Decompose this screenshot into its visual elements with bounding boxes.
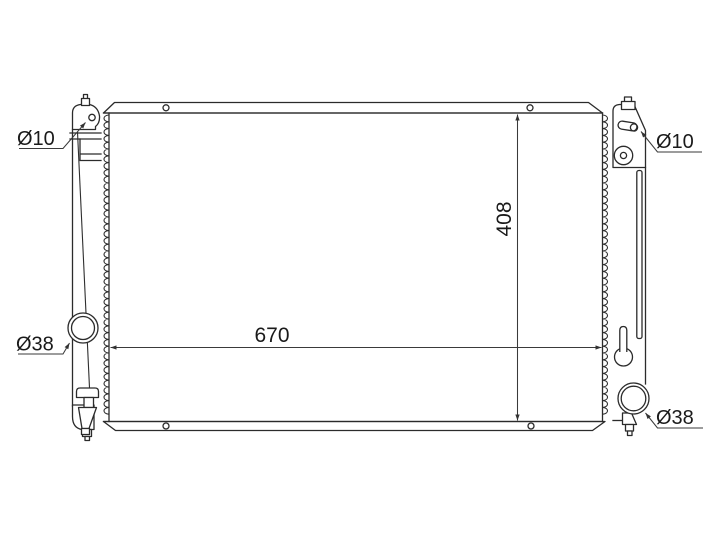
dim-height-value: 408 (493, 201, 516, 236)
right-mount-grommet (614, 146, 632, 164)
right-tank (613, 97, 649, 436)
right-side-channel (637, 171, 642, 339)
overflow-stem (620, 327, 627, 353)
left-tank-step (80, 139, 101, 161)
dimension-height: 408 (493, 115, 518, 421)
right-fin-edge (603, 115, 608, 414)
grommet-outer (614, 146, 632, 164)
dia38-left-text: Ø38 (16, 334, 54, 356)
left-tank (68, 95, 101, 441)
right-foot-tab (626, 425, 634, 432)
bottom-plate (104, 422, 606, 431)
dia38-right-text: Ø38 (656, 407, 694, 429)
right-foot (623, 413, 637, 425)
left-tank-taper-line (78, 132, 90, 388)
left-bottom-notch (85, 437, 90, 441)
left-top-tab (82, 99, 90, 106)
inlet-port (68, 313, 98, 343)
overflow-pipe (615, 327, 633, 367)
left-fin-edge (104, 115, 109, 414)
drain-plug-foot (82, 429, 90, 435)
right-foot-notch (628, 431, 633, 436)
label-dia38-right: Ø38 (646, 407, 704, 429)
drawing-canvas: 670 408 Ø10 Ø38 Ø10 Ø38 (0, 0, 720, 540)
dia10-left-text: Ø10 (17, 128, 55, 150)
label-dia38-left: Ø38 (16, 334, 70, 356)
inlet-outer-ring (68, 313, 98, 343)
dim-width-value: 670 (254, 324, 289, 347)
radiator-technical-drawing: 670 408 Ø10 Ø38 Ø10 Ø38 (0, 0, 720, 540)
drain-plug-stem (84, 398, 94, 408)
outlet-outer-ring (618, 383, 649, 414)
dia10-right-text: Ø10 (656, 131, 694, 153)
left-tank-flange-line (70, 133, 101, 139)
dimension-width: 670 (111, 324, 602, 348)
radiator-core (104, 113, 608, 422)
label-dia10-right: Ø10 (641, 131, 702, 153)
drain-plug-cap (77, 388, 99, 398)
top-plate (104, 103, 603, 114)
outlet-port (618, 383, 649, 414)
left-mount-hole (89, 114, 95, 120)
right-top-tab (622, 102, 636, 110)
